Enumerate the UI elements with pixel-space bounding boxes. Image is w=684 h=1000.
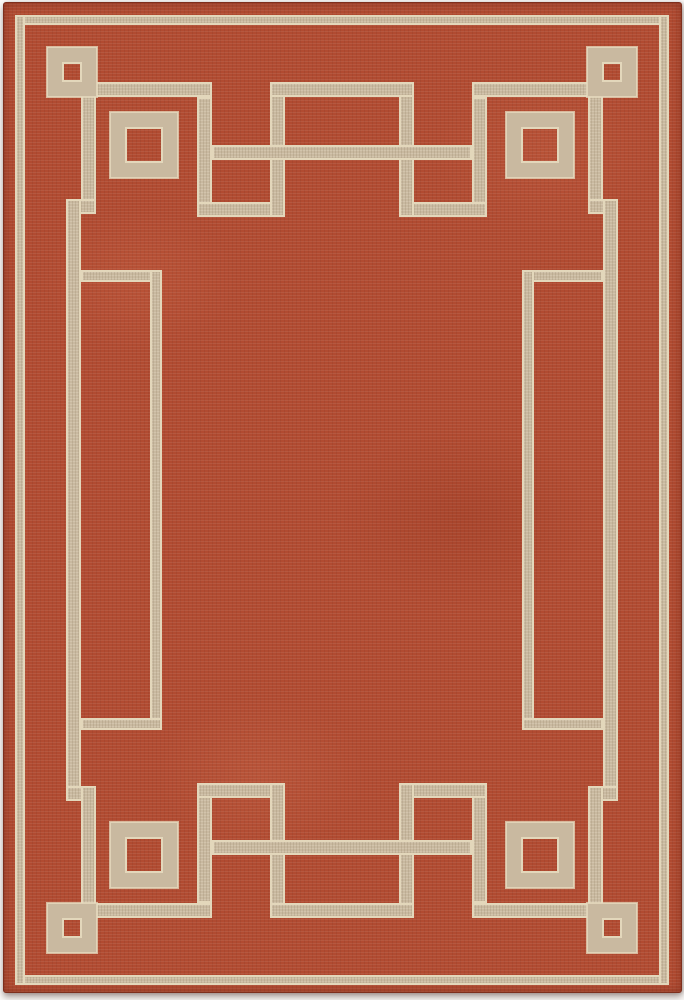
small-corner-square-top-left — [47, 47, 97, 97]
bottom-key-drop-left — [197, 783, 212, 903]
outer-pinstripe-bottom — [15, 975, 669, 985]
small-corner-square-top-right — [587, 47, 637, 97]
inner-bracket-left-bottom — [81, 718, 162, 730]
outer-pinstripe-top — [15, 15, 669, 25]
big-corner-square-top-left — [110, 112, 178, 178]
right-rail-lower-drop — [588, 786, 603, 905]
bottom-keyline-right — [472, 903, 592, 918]
inner-bracket-right-vertical — [522, 270, 534, 730]
inner-bracket-right-bottom — [522, 718, 603, 730]
outer-pinstripe-right — [659, 15, 669, 985]
small-corner-square-bottom-left — [47, 903, 97, 953]
left-rail-lower-drop — [81, 786, 96, 905]
big-corner-square-top-right — [506, 112, 574, 178]
bottom-crossbar — [212, 840, 472, 855]
right-rail — [603, 199, 618, 801]
small-corner-square-bottom-right — [587, 903, 637, 953]
top-bump-cap — [270, 82, 414, 97]
inner-bracket-left-vertical — [150, 270, 162, 730]
bottom-keyline-left — [92, 903, 212, 918]
rug-photo — [0, 0, 684, 1000]
big-corner-square-bottom-left — [110, 822, 178, 888]
left-rail — [66, 199, 81, 801]
top-keyline-left — [92, 82, 212, 97]
top-crossbar — [212, 145, 472, 160]
bottom-key-drop-right — [472, 783, 487, 903]
top-key-drop-left — [197, 97, 212, 217]
outer-pinstripe-left — [15, 15, 25, 985]
top-keyline-right — [472, 82, 592, 97]
bottom-bump-cap — [270, 903, 414, 918]
left-rail-upper-drop — [81, 95, 96, 214]
inner-bracket-right-top — [522, 270, 603, 282]
right-rail-upper-drop — [588, 95, 603, 214]
top-key-drop-right — [472, 97, 487, 217]
big-corner-square-bottom-right — [506, 822, 574, 888]
